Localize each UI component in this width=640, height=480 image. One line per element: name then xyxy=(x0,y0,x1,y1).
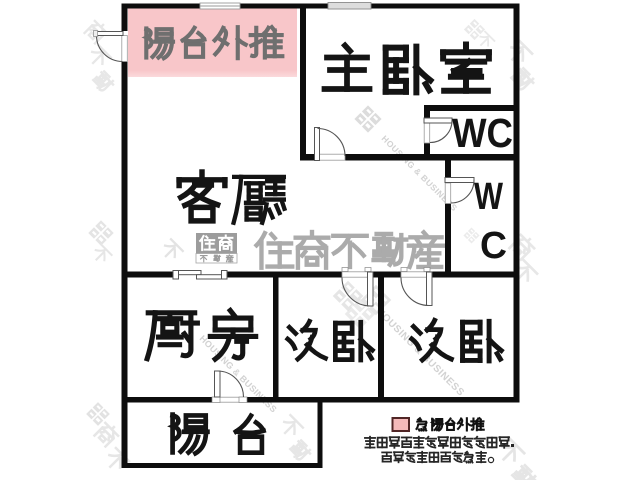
svg-text:WC: WC xyxy=(452,110,513,156)
svg-text:C: C xyxy=(480,225,507,267)
svg-text:W: W xyxy=(474,176,503,218)
